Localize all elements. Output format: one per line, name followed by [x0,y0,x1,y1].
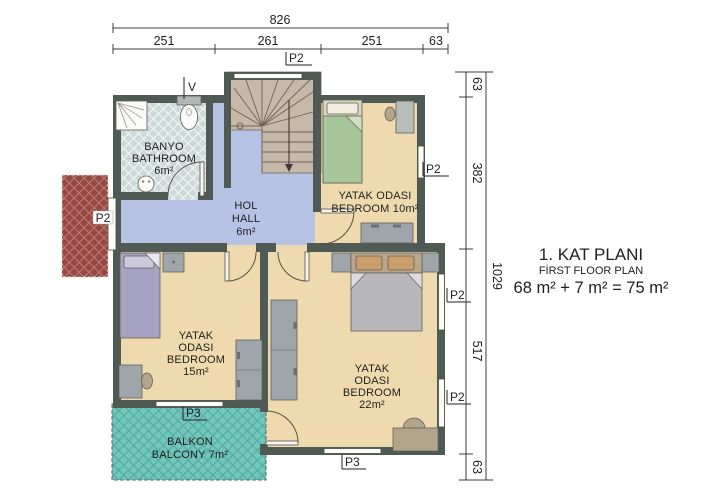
bedroom10-pillow [327,103,358,114]
p3-balcony-tag: P3 [186,406,201,420]
bathroom-door-leaf [200,162,204,196]
bathroom-label-en: BATHROOM [132,153,196,165]
floor-plan-drawing: BANYO BATHROOM 6m² HOL HALL 6m² YATAK OD… [0,0,720,498]
bedroom22-desk [393,428,438,451]
wall-hall-divider-a [113,243,227,252]
plan-title-tr: 1. KAT PLANI [539,245,643,264]
p2-bedroom10-tag: P2 [426,162,441,176]
bedroom22-label-en: BEDROOM [343,387,401,399]
bedroom22-label-tr2: ODASI [354,375,389,387]
bedroom15-label-tr2: ODASI [178,342,213,354]
bedroom15-chair [142,373,153,389]
bedroom22-area: 22m² [359,399,385,411]
p2-west-tag: P2 [96,211,111,225]
wall-stair-left [224,72,231,188]
p2-bedroom22-upper-tag: P2 [450,288,465,302]
bedroom10-label-en: BEDROOM 10m² [331,203,418,215]
bedroom10-dresser-handle-left [371,225,379,228]
bedroom22-wardrobe-handle-bottom [294,368,297,375]
dim-right-seg-0: 63 [470,77,484,91]
bedroom22-east-window-upper [439,274,445,330]
balcony-label-en: BALCONY 7m² [152,449,229,461]
bedroom22-nightstand-right [422,253,439,272]
wall-hall-divider-c [307,243,445,252]
balcony-label-tr: BALKON [167,436,213,448]
bedroom10-dresser [361,223,413,243]
wall-bedroom10-left [313,72,321,212]
bedroom15-label-tr: YATAK [179,330,214,342]
bathroom-area: 6m² [154,165,174,177]
bedroom15-wardrobe-handle-top [237,352,240,359]
bedroom15-area: 15m² [183,366,209,378]
bedroom22-blanket [351,273,422,331]
terrace-roof [62,175,108,277]
hall-area: 6m² [236,226,256,238]
bedroom15-door-leaf [225,252,229,281]
sink-basin [138,176,154,192]
dim-right-seg-3: 63 [470,460,484,474]
bedroom22-south-window [324,449,381,454]
wall-bathroom-right [206,95,213,200]
toilet-tank [177,96,201,105]
balcony-door-leaf [266,441,298,445]
wall-hall-divider-b [256,243,276,252]
shower-tray [116,101,147,130]
title-block: 1. KAT PLANI FİRST FLOOR PLAN 68 m² + 7 … [514,245,669,297]
bedroom15-label-en: BEDROOM [167,354,225,366]
dim-top-seg-0: 251 [154,34,175,48]
bedroom22-wardrobe-handle-top [294,322,297,329]
bedroom10-dresser-handle-right [393,225,401,228]
p2-bedroom22-lower-tag: P2 [450,390,465,404]
bathroom-label-tr: BANYO [144,141,184,153]
plan-area-equation: 68 m² + 7 m² = 75 m² [514,279,669,297]
dimension-top: 826 251 261 251 63 [113,13,448,54]
sink-tap-right [148,180,151,183]
dim-right-total-label: 1029 [490,262,504,290]
bedroom10-chair [385,107,395,121]
wall-bathroom-bottom-a [113,192,168,200]
floor-plan-page: BANYO BATHROOM 6m² HOL HALL 6m² YATAK OD… [0,0,720,498]
p3-bedroom22-tag: P3 [345,455,360,469]
bedroom22-pillow-right [388,256,414,270]
dim-top-seg-3: 63 [429,34,443,48]
sink-tap-left [142,180,145,183]
dim-top-seg-2: 251 [362,34,383,48]
hall-label-en: HALL [232,213,260,225]
dim-top-total-label: 826 [270,13,291,27]
hall-label-tr: HOL [234,200,257,212]
dim-top-seg-1: 261 [258,34,279,48]
stair-top-window [234,74,302,79]
bedroom15-nightstand-knob [172,261,175,264]
p2-stair-tag: P2 [289,51,304,65]
plan-title-en: FİRST FLOOR PLAN [539,264,643,277]
dimension-right: 63 382 517 63 1029 [455,72,504,480]
dim-right-seg-2: 517 [470,341,484,362]
bedroom10-desk [396,101,414,133]
terrace-hatch [62,175,108,277]
bedroom22-pillow-left [356,256,382,270]
bedroom22-east-window-lower [439,379,445,427]
bedroom22-nightstand-left [332,253,351,272]
bedroom22-door-leaf [305,252,309,281]
vent-tag: V [188,80,196,94]
bedroom15-desk [119,365,142,398]
bedroom10-label-tr: YATAK ODASI [338,190,411,202]
dim-right-seg-1: 382 [470,163,484,184]
bedroom15-wardrobe-handle-bottom [237,380,240,387]
bedroom22-label-tr: YATAK [355,363,390,375]
